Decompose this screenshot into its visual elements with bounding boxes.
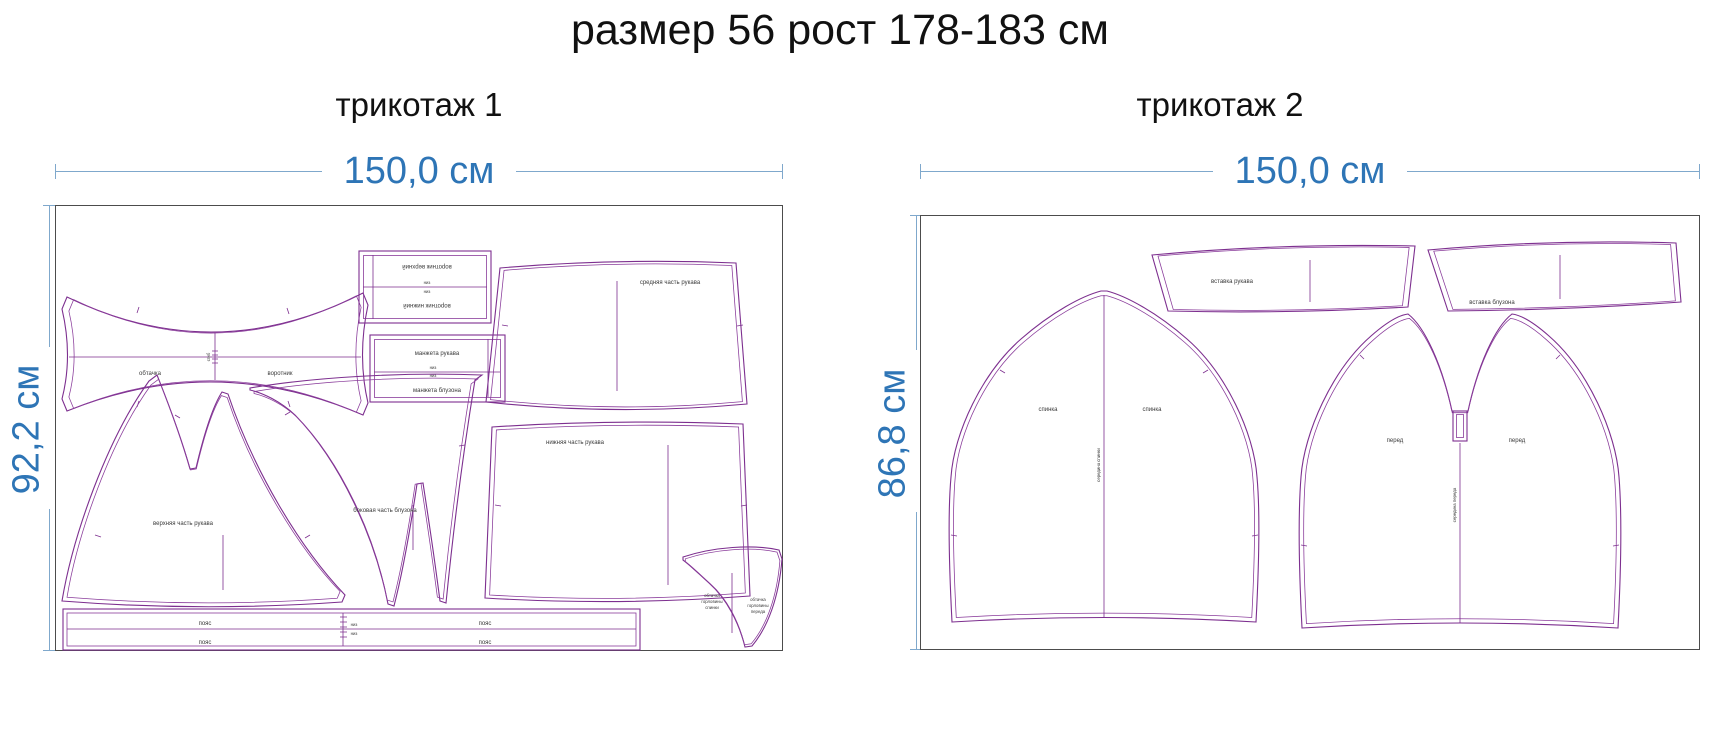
pattern-piece-cuff: манжета рукава низ низ манжета блузона (370, 335, 505, 402)
back-center-label: середина спинки (1096, 448, 1101, 482)
pattern-piece-collar-band: воротник верхний низ низ воротник нижний (359, 251, 491, 323)
dim-line (921, 171, 1213, 172)
facing-left-label: обтачка (704, 593, 720, 598)
front-right-label: перед (1509, 438, 1526, 444)
panel2-width-dimension: 150,0 см (920, 149, 1700, 195)
dim-line (49, 509, 50, 651)
pattern-piece-body-insert: вставка блузона (1428, 242, 1681, 311)
waistband-label: пояс (199, 621, 212, 627)
pattern-layout-sheet: размер 56 рост 178-183 см трикотаж 1 три… (0, 0, 1722, 732)
fold-mark: низ (351, 622, 358, 627)
panel1-subtitle: трикотаж 1 (55, 86, 783, 124)
collar-band-bottom-label: воротник нижний (403, 302, 450, 309)
facing-right-label: горловины (747, 603, 768, 608)
panel1-pattern-drawing: обтачка воротник сгиб воротник верхний н… (55, 205, 783, 651)
pattern-piece-sleeve-lower: нижняя часть рукава (485, 422, 750, 601)
back-right-label: спинка (1142, 407, 1162, 413)
pattern-piece-front: перед перед середина переда (1299, 314, 1621, 628)
sleeve-upper-label: верхняя часть рукава (153, 521, 214, 527)
sleeve-lower-label: нижняя часть рукава (546, 440, 605, 446)
dim-line (916, 512, 917, 650)
facing-left-label: горловины (701, 599, 722, 604)
panel2-pattern-drawing: вставка рукава вставка блузона спинка сп… (920, 215, 1700, 650)
pattern-piece-collar: обтачка воротник сгиб (62, 293, 368, 415)
dim-line (1407, 171, 1699, 172)
panel2-subtitle: трикотаж 2 (920, 86, 1520, 124)
front-center-label: середина переда (1452, 487, 1457, 522)
dim-tick (782, 164, 783, 179)
cuff-bottom-label: манжета блузона (413, 388, 462, 394)
dim-line (516, 171, 782, 172)
sleeve-middle-label: средняя часть рукава (640, 280, 701, 286)
pattern-piece-back: спинка спинка середина спинки (949, 291, 1259, 622)
facing-right-label: обтачка (750, 597, 766, 602)
collar-band-top-label: воротник верхний (402, 263, 451, 270)
front-left-label: перед (1387, 438, 1404, 444)
panel2-height-label: 86,8 см (872, 354, 915, 514)
dim-line (49, 205, 50, 347)
panel1-height-label: 92,2 см (6, 350, 49, 510)
pattern-piece-sleeve-upper: верхняя часть рукава (62, 375, 345, 607)
collar-left-label: обтачка (139, 371, 162, 377)
facing-left-label: спинки (705, 605, 719, 610)
cuff-top-label: манжета рукава (415, 351, 460, 357)
panel1-width-label: 150,0 см (334, 149, 505, 193)
side-body-label: боковая часть блузона (353, 508, 417, 514)
pattern-piece-sleeve-middle: средняя часть рукава (486, 261, 747, 409)
dim-line (56, 171, 322, 172)
waistband-label: пояс (479, 621, 492, 627)
page-title: размер 56 рост 178-183 см (0, 6, 1680, 55)
dim-tick (1699, 164, 1700, 179)
waistband-label: пояс (479, 640, 492, 646)
collar-right-label: воротник (267, 371, 292, 377)
fold-mark: низ (424, 280, 431, 285)
zipper-placket (1453, 411, 1467, 441)
pattern-piece-sleeve-insert: вставка рукава (1152, 245, 1415, 312)
body-insert-label: вставка блузона (1469, 300, 1515, 306)
dim-line (916, 215, 917, 350)
waistband-label: пояс (199, 640, 212, 646)
fold-mark: низ (351, 631, 358, 636)
facing-right-label: переда (751, 609, 766, 614)
sleeve-insert-label: вставка рукава (1211, 279, 1254, 285)
panel2-width-label: 150,0 см (1225, 149, 1396, 193)
pattern-piece-waistband: пояс пояс пояс пояс низ низ (63, 609, 640, 650)
back-left-label: спинка (1038, 407, 1058, 413)
collar-fold-label: сгиб (206, 352, 211, 361)
panel1-width-dimension: 150,0 см (55, 149, 783, 195)
fold-mark: низ (424, 289, 431, 294)
fold-mark: низ (430, 365, 437, 370)
